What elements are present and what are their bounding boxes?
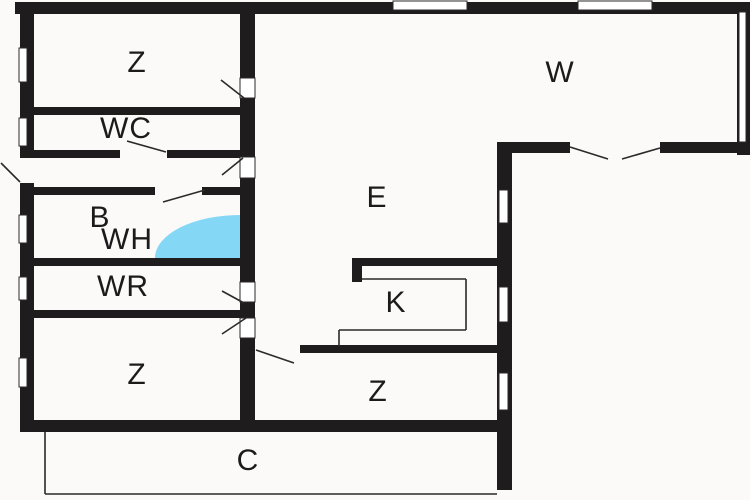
wall <box>240 2 255 78</box>
wall <box>28 258 240 266</box>
window-icon <box>739 12 746 142</box>
door-opening <box>240 78 255 98</box>
door-swing-line <box>256 350 294 363</box>
room-label-w-9: W <box>545 56 574 90</box>
window-icon <box>19 215 27 243</box>
door-opening <box>240 157 255 178</box>
window-icon <box>19 48 27 82</box>
window-icon <box>499 190 508 223</box>
wall <box>352 258 500 266</box>
wall <box>28 150 120 158</box>
bathtub <box>155 215 240 258</box>
window-icon <box>19 118 27 146</box>
window-icon <box>499 287 508 322</box>
wall <box>497 142 570 153</box>
room-label-z-5: Z <box>127 358 146 392</box>
wall <box>167 150 240 158</box>
window-icon <box>499 373 508 410</box>
window-icon <box>19 358 27 387</box>
wall <box>20 420 512 432</box>
window-icon <box>19 277 27 300</box>
window-icon <box>393 1 467 10</box>
door-swing-line <box>1 163 20 182</box>
wall <box>240 338 255 430</box>
wall <box>660 142 750 153</box>
room-label-k-7: K <box>385 286 406 320</box>
wall <box>28 187 155 195</box>
door-swing-line <box>163 190 205 202</box>
room-label-c-10: C <box>237 444 260 478</box>
wall <box>300 345 512 353</box>
door-opening <box>240 282 255 302</box>
window-icon <box>578 1 652 10</box>
room-label-z-0: Z <box>127 46 146 80</box>
wall <box>352 258 362 282</box>
room-label-wc-1: WC <box>100 112 152 146</box>
door-swing-line <box>570 147 608 159</box>
room-label-wh-3: WH <box>101 223 153 257</box>
room-label-e-6: E <box>366 181 387 215</box>
room-label-z-8: Z <box>368 375 387 409</box>
room-label-wr-4: WR <box>97 270 149 304</box>
floor-plan: ZWCBWHWRZEKZWC <box>0 0 750 500</box>
wall <box>202 187 240 195</box>
door-swing-line <box>622 148 660 159</box>
wall <box>28 310 255 318</box>
wall <box>240 178 255 282</box>
wall <box>240 98 255 157</box>
